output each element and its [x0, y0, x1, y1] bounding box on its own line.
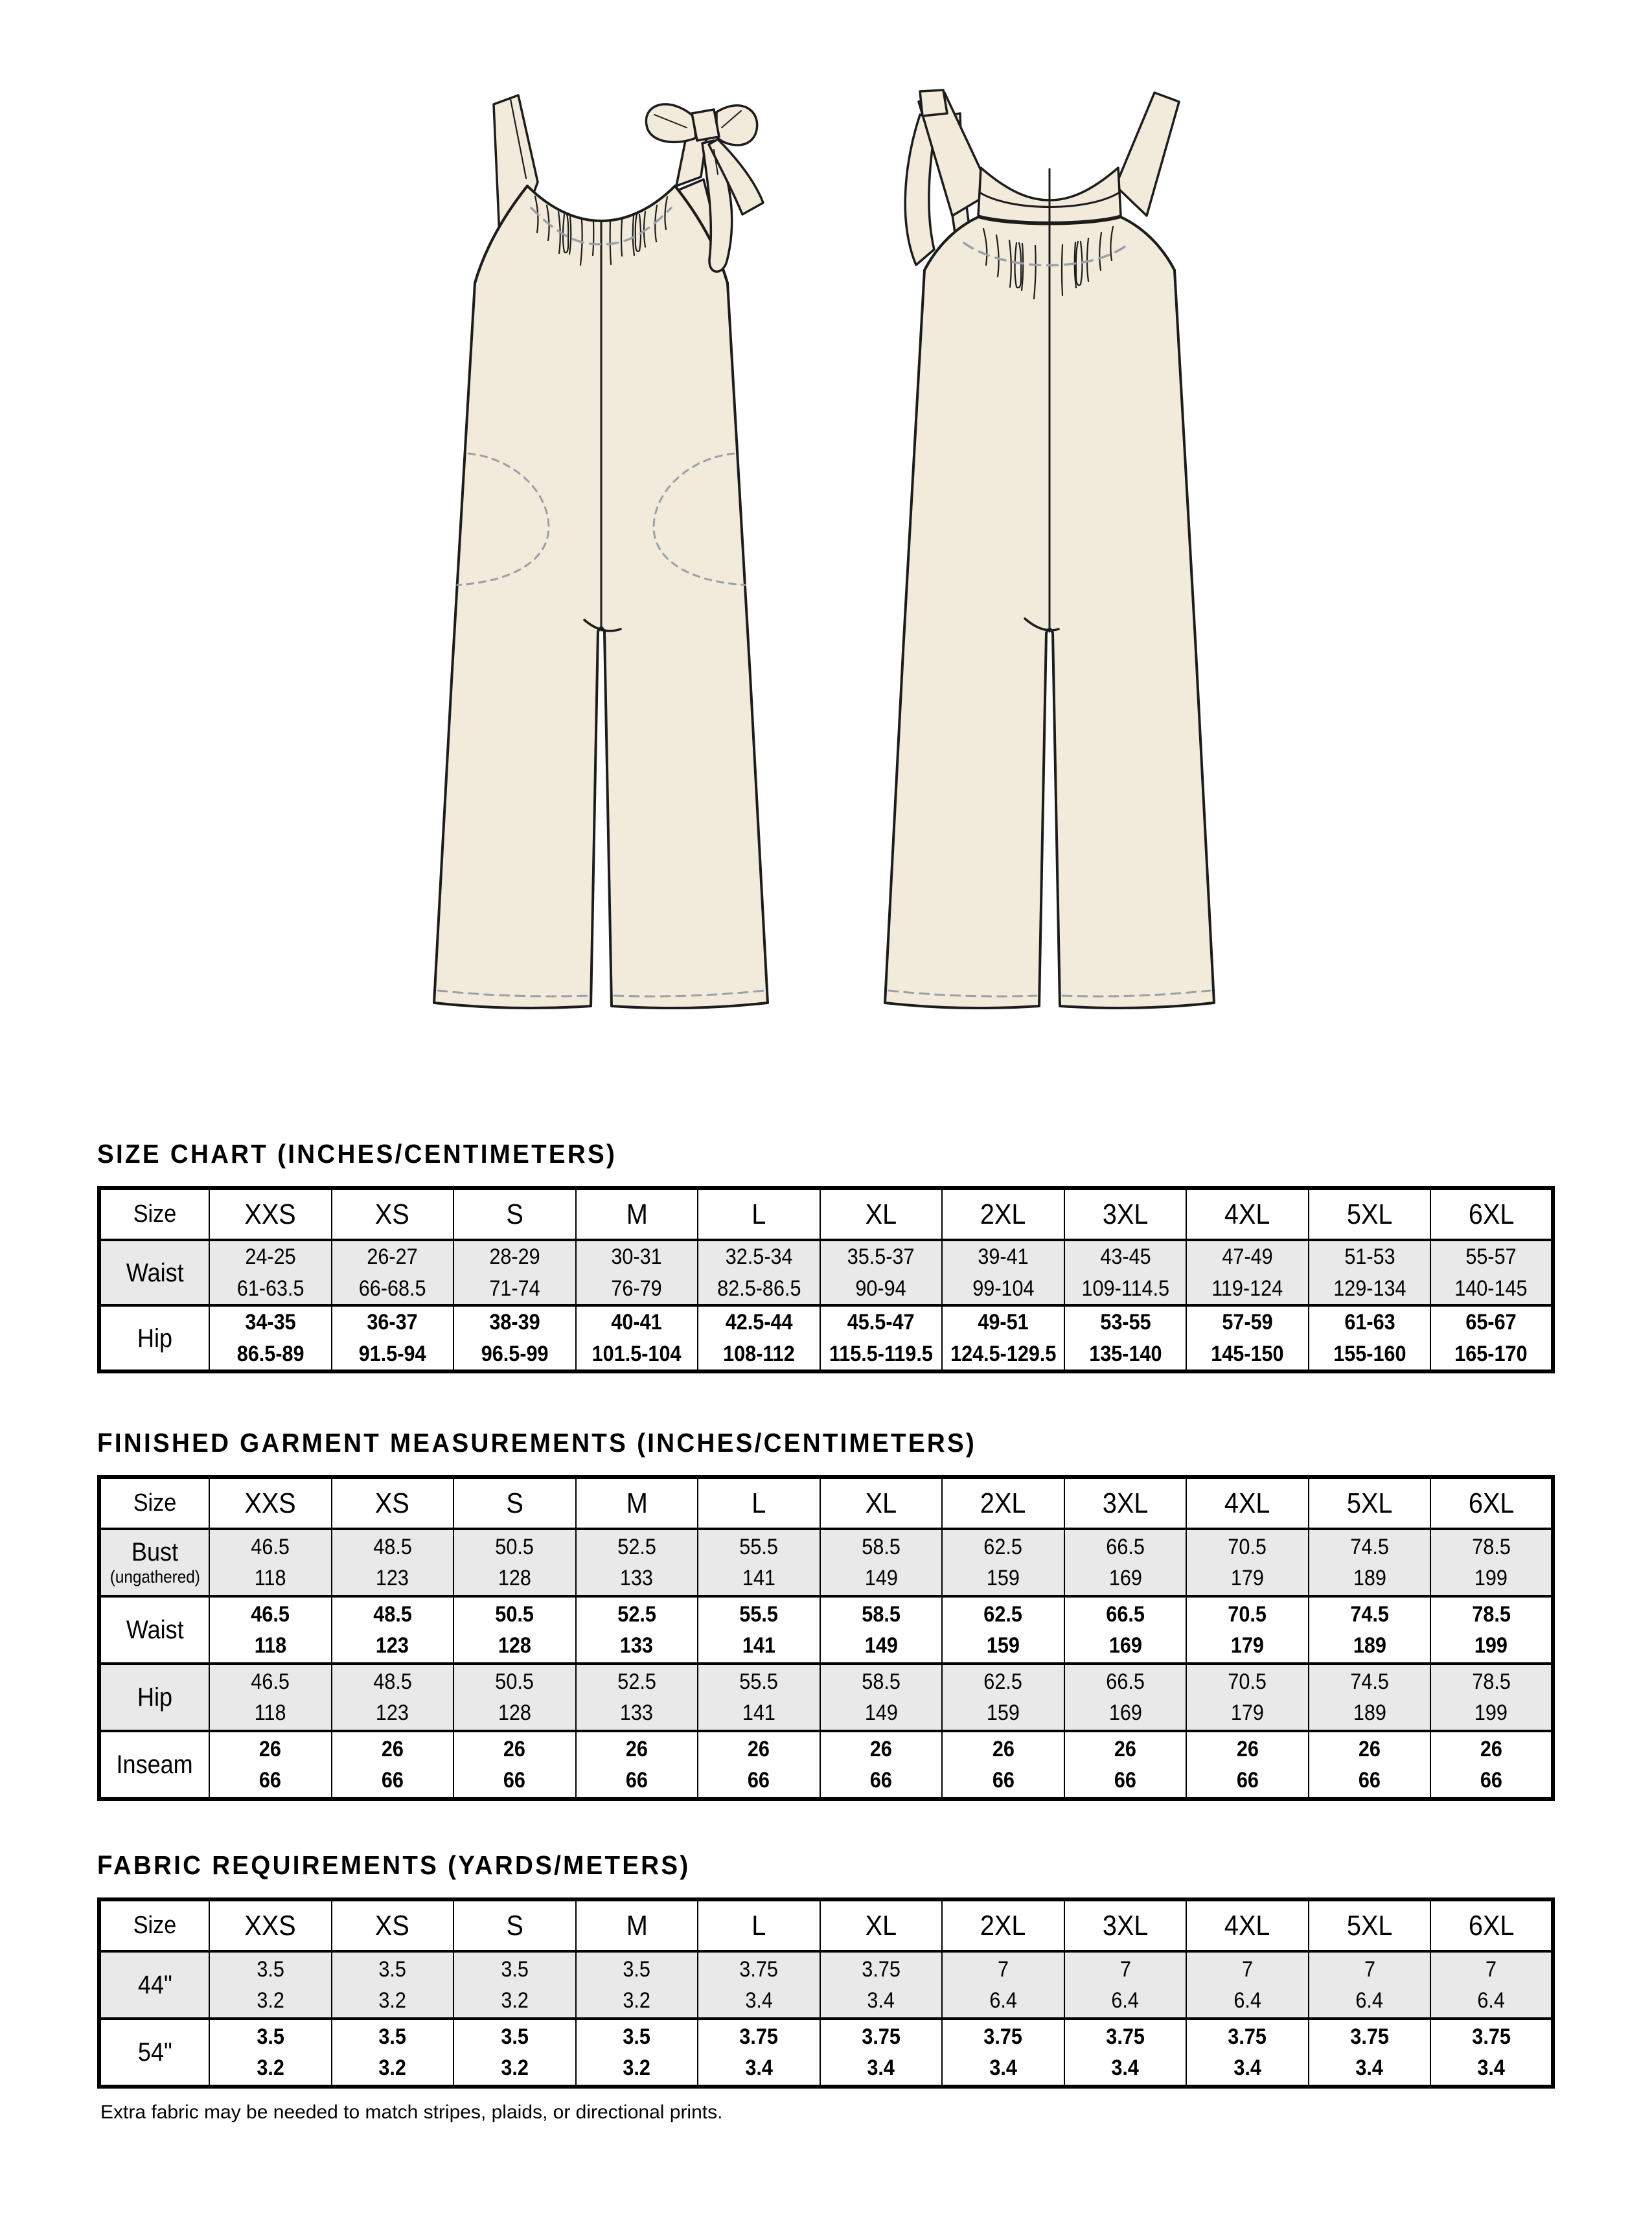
- size-header-cell: 6XL: [1430, 1899, 1553, 1951]
- size-header-row: SizeXXSXSSMLXL2XL3XL4XL5XL6XL: [99, 1899, 1553, 1951]
- table-row: Bust(ungathered)46.511848.512350.512852.…: [99, 1529, 1553, 1596]
- measurement-cell: 3.53.2: [209, 2019, 332, 2087]
- size-header-cell: M: [576, 1188, 698, 1240]
- size-header-cell: XXS: [209, 1899, 332, 1951]
- measurement-cell: 3.53.2: [209, 1951, 332, 2019]
- row-label: Bust(ungathered): [99, 1529, 209, 1596]
- measurement-cell: 39-4199-104: [942, 1240, 1064, 1305]
- size-header-cell: 3XL: [1064, 1477, 1187, 1529]
- row-label: Waist: [99, 1596, 209, 1664]
- measurement-cell: 78.5199: [1430, 1596, 1553, 1664]
- row-label: 44": [99, 1951, 209, 2019]
- size-header-cell: XL: [820, 1477, 943, 1529]
- finished-garment-title: FINISHED GARMENT MEASUREMENTS (INCHES/CE…: [97, 1428, 1467, 1458]
- measurement-cell: 50.5128: [453, 1664, 576, 1731]
- size-header-cell: 2XL: [942, 1477, 1064, 1529]
- row-label: Hip: [99, 1305, 209, 1371]
- size-header-cell: 4XL: [1186, 1477, 1309, 1529]
- measurement-cell: 76.4: [1064, 1951, 1187, 2019]
- measurement-cell: 74.5189: [1309, 1596, 1431, 1664]
- measurement-cell: 58.5149: [820, 1664, 943, 1731]
- size-header-cell: 4XL: [1186, 1899, 1309, 1951]
- size-header-cell: XL: [820, 1188, 943, 1240]
- measurement-cell: 50.5128: [453, 1529, 576, 1596]
- measurement-cell: 3.753.4: [1064, 2019, 1187, 2087]
- measurement-cell: 76.4: [1430, 1951, 1553, 2019]
- bow-knot: [692, 109, 719, 141]
- measurement-cell: 78.5199: [1430, 1664, 1553, 1731]
- measurement-cell: 48.5123: [332, 1596, 454, 1664]
- bow-right-loop: [717, 106, 757, 145]
- size-header-cell: XXS: [209, 1188, 332, 1240]
- measurement-cell: 40-41101.5-104: [576, 1305, 698, 1371]
- measurement-cell: 58.5149: [820, 1529, 943, 1596]
- measurement-cell: 3.753.4: [698, 2019, 820, 2087]
- row-label: Hip: [99, 1664, 209, 1731]
- measurement-cell: 76.4: [1309, 1951, 1431, 2019]
- measurement-cell: 30-3176-79: [576, 1240, 698, 1305]
- measurement-cell: 53-55135-140: [1064, 1305, 1187, 1371]
- measurement-cell: 62.5159: [942, 1596, 1064, 1664]
- measurement-cell: 70.5179: [1186, 1596, 1309, 1664]
- table-row: 44"3.53.23.53.23.53.23.53.23.753.43.753.…: [99, 1951, 1553, 2019]
- size-header-cell: M: [576, 1477, 698, 1529]
- measurement-cell: 2666: [576, 1731, 698, 1799]
- measurement-cell: 3.753.4: [1186, 2019, 1309, 2087]
- size-header-cell: 3XL: [1064, 1188, 1187, 1240]
- table-row: Inseam2666266626662666266626662666266626…: [99, 1731, 1553, 1799]
- measurement-cell: 48.5123: [332, 1529, 454, 1596]
- size-header-cell: XS: [332, 1477, 454, 1529]
- size-header-cell: M: [576, 1899, 698, 1951]
- measurement-cell: 51-53129-134: [1309, 1240, 1431, 1305]
- size-header-row: SizeXXSXSSMLXL2XL3XL4XL5XL6XL: [99, 1477, 1553, 1529]
- size-header-cell: 2XL: [942, 1188, 1064, 1240]
- measurement-cell: 2666: [820, 1731, 943, 1799]
- measurement-cell: 57-59145-150: [1186, 1305, 1309, 1371]
- measurement-cell: 52.5133: [576, 1596, 698, 1664]
- size-header-cell: S: [453, 1477, 576, 1529]
- measurement-cell: 3.53.2: [453, 1951, 576, 2019]
- measurement-cell: 55.5141: [698, 1596, 820, 1664]
- size-header-cell: 5XL: [1309, 1477, 1431, 1529]
- measurement-cell: 2666: [1309, 1731, 1431, 1799]
- size-header-cell: 3XL: [1064, 1899, 1187, 1951]
- measurement-cell: 26-2766-68.5: [332, 1240, 454, 1305]
- row-label: Waist: [99, 1240, 209, 1305]
- size-chart-section: SIZE CHART (INCHES/CENTIMETERS) SizeXXSX…: [97, 1139, 1555, 1373]
- measurement-cell: 66.5169: [1064, 1664, 1187, 1731]
- size-header-cell: XS: [332, 1188, 454, 1240]
- measurement-cell: 28-2971-74: [453, 1240, 576, 1305]
- measurement-cell: 49-51124.5-129.5: [942, 1305, 1064, 1371]
- measurement-cell: 42.5-44108-112: [698, 1305, 820, 1371]
- size-column-header: Size: [99, 1477, 209, 1529]
- measurement-cell: 45.5-47115.5-119.5: [820, 1305, 943, 1371]
- fabric-footnote: Extra fabric may be needed to match stri…: [100, 2102, 722, 2124]
- measurement-cell: 74.5189: [1309, 1664, 1431, 1731]
- measurement-cell: 48.5123: [332, 1664, 454, 1731]
- measurement-cell: 65-67165-170: [1430, 1305, 1553, 1371]
- size-column-header: Size: [99, 1899, 209, 1951]
- size-header-cell: XXS: [209, 1477, 332, 1529]
- measurement-cell: 36-3791.5-94: [332, 1305, 454, 1371]
- measurement-cell: 2666: [332, 1731, 454, 1799]
- measurement-cell: 46.5118: [209, 1529, 332, 1596]
- finished-garment-table: SizeXXSXSSMLXL2XL3XL4XL5XL6XLBust(ungath…: [97, 1475, 1555, 1801]
- measurement-cell: 55.5141: [698, 1529, 820, 1596]
- jumpsuit-back-illustration: [854, 87, 1226, 1014]
- measurement-cell: 78.5199: [1430, 1529, 1553, 1596]
- measurement-cell: 70.5179: [1186, 1664, 1309, 1731]
- measurement-cell: 2666: [1186, 1731, 1309, 1799]
- size-header-cell: 5XL: [1309, 1899, 1431, 1951]
- measurement-cell: 3.753.4: [820, 2019, 943, 2087]
- measurement-cell: 2666: [698, 1731, 820, 1799]
- back-right-strap: [1116, 93, 1179, 216]
- measurement-cell: 38-3996.5-99: [453, 1305, 576, 1371]
- measurement-cell: 3.53.2: [453, 2019, 576, 2087]
- measurement-cell: 58.5149: [820, 1596, 943, 1664]
- measurement-cell: 62.5159: [942, 1664, 1064, 1731]
- size-column-header: Size: [99, 1188, 209, 1240]
- measurement-cell: 74.5189: [1309, 1529, 1431, 1596]
- measurement-cell: 76.4: [1186, 1951, 1309, 2019]
- measurement-cell: 3.753.4: [1430, 2019, 1553, 2087]
- measurement-cell: 43-45109-114.5: [1064, 1240, 1187, 1305]
- size-header-cell: L: [698, 1899, 820, 1951]
- size-header-cell: 4XL: [1186, 1188, 1309, 1240]
- measurement-cell: 66.5169: [1064, 1529, 1187, 1596]
- measurement-cell: 55.5141: [698, 1664, 820, 1731]
- measurement-cell: 2666: [1430, 1731, 1553, 1799]
- measurement-cell: 3.53.2: [332, 2019, 454, 2087]
- size-header-cell: XL: [820, 1899, 943, 1951]
- fabric-requirements-table: SizeXXSXSSMLXL2XL3XL4XL5XL6XL44"3.53.23.…: [97, 1897, 1555, 2089]
- size-header-cell: L: [698, 1477, 820, 1529]
- measurement-cell: 34-3586.5-89: [209, 1305, 332, 1371]
- table-row: Waist46.511848.512350.512852.513355.5141…: [99, 1596, 1553, 1664]
- back-tie-knot: [920, 90, 947, 116]
- size-chart-table: SizeXXSXSSMLXL2XL3XL4XL5XL6XLWaist24-256…: [97, 1186, 1555, 1373]
- table-row: Hip46.511848.512350.512852.513355.514158…: [99, 1664, 1553, 1731]
- size-header-cell: XS: [332, 1899, 454, 1951]
- finished-garment-section: FINISHED GARMENT MEASUREMENTS (INCHES/CE…: [97, 1428, 1555, 1801]
- row-label: Inseam: [99, 1731, 209, 1799]
- size-header-cell: 2XL: [942, 1899, 1064, 1951]
- measurement-cell: 55-57140-145: [1430, 1240, 1553, 1305]
- measurement-cell: 2666: [942, 1731, 1064, 1799]
- size-header-cell: 6XL: [1430, 1188, 1553, 1240]
- measurement-cell: 3.753.4: [1309, 2019, 1431, 2087]
- measurement-cell: 61-63155-160: [1309, 1305, 1431, 1371]
- size-header-cell: S: [453, 1188, 576, 1240]
- size-header-cell: 6XL: [1430, 1477, 1553, 1529]
- measurement-cell: 32.5-3482.5-86.5: [698, 1240, 820, 1305]
- size-header-row: SizeXXSXSSMLXL2XL3XL4XL5XL6XL: [99, 1188, 1553, 1240]
- pattern-size-chart-page: SIZE CHART (INCHES/CENTIMETERS) SizeXXSX…: [0, 0, 1652, 2235]
- fabric-requirements-section: FABRIC REQUIREMENTS (YARDS/METERS) SizeX…: [97, 1850, 1555, 2089]
- measurement-cell: 2666: [453, 1731, 576, 1799]
- measurement-cell: 46.5118: [209, 1664, 332, 1731]
- table-row: 54"3.53.23.53.23.53.23.53.23.753.43.753.…: [99, 2019, 1553, 2087]
- measurement-cell: 35.5-3790-94: [820, 1240, 943, 1305]
- measurement-cell: 3.753.4: [942, 2019, 1064, 2087]
- measurement-cell: 2666: [1064, 1731, 1187, 1799]
- measurement-cell: 70.5179: [1186, 1529, 1309, 1596]
- fabric-requirements-title: FABRIC REQUIREMENTS (YARDS/METERS): [97, 1850, 1467, 1881]
- table-row: Waist24-2561-63.526-2766-68.528-2971-743…: [99, 1240, 1553, 1305]
- measurement-cell: 3.753.4: [698, 1951, 820, 2019]
- measurement-cell: 52.5133: [576, 1664, 698, 1731]
- measurement-cell: 3.53.2: [576, 2019, 698, 2087]
- size-header-cell: S: [453, 1899, 576, 1951]
- measurement-cell: 47-49119-124: [1186, 1240, 1309, 1305]
- table-row: Hip34-3586.5-8936-3791.5-9438-3996.5-994…: [99, 1305, 1553, 1371]
- measurement-cell: 3.753.4: [820, 1951, 943, 2019]
- bow-left-loop: [646, 104, 696, 142]
- measurement-cell: 52.5133: [576, 1529, 698, 1596]
- size-header-cell: L: [698, 1188, 820, 1240]
- measurement-cell: 3.53.2: [332, 1951, 454, 2019]
- row-label: 54": [99, 2019, 209, 2087]
- measurement-cell: 3.53.2: [576, 1951, 698, 2019]
- measurement-cell: 62.5159: [942, 1529, 1064, 1596]
- measurement-cell: 24-2561-63.5: [209, 1240, 332, 1305]
- measurement-cell: 46.5118: [209, 1596, 332, 1664]
- measurement-cell: 76.4: [942, 1951, 1064, 2019]
- measurement-cell: 2666: [209, 1731, 332, 1799]
- size-chart-title: SIZE CHART (INCHES/CENTIMETERS): [97, 1139, 1467, 1169]
- jumpsuit-front-illustration: [415, 87, 787, 1014]
- measurement-cell: 66.5169: [1064, 1596, 1187, 1664]
- measurement-cell: 50.5128: [453, 1596, 576, 1664]
- size-header-cell: 5XL: [1309, 1188, 1431, 1240]
